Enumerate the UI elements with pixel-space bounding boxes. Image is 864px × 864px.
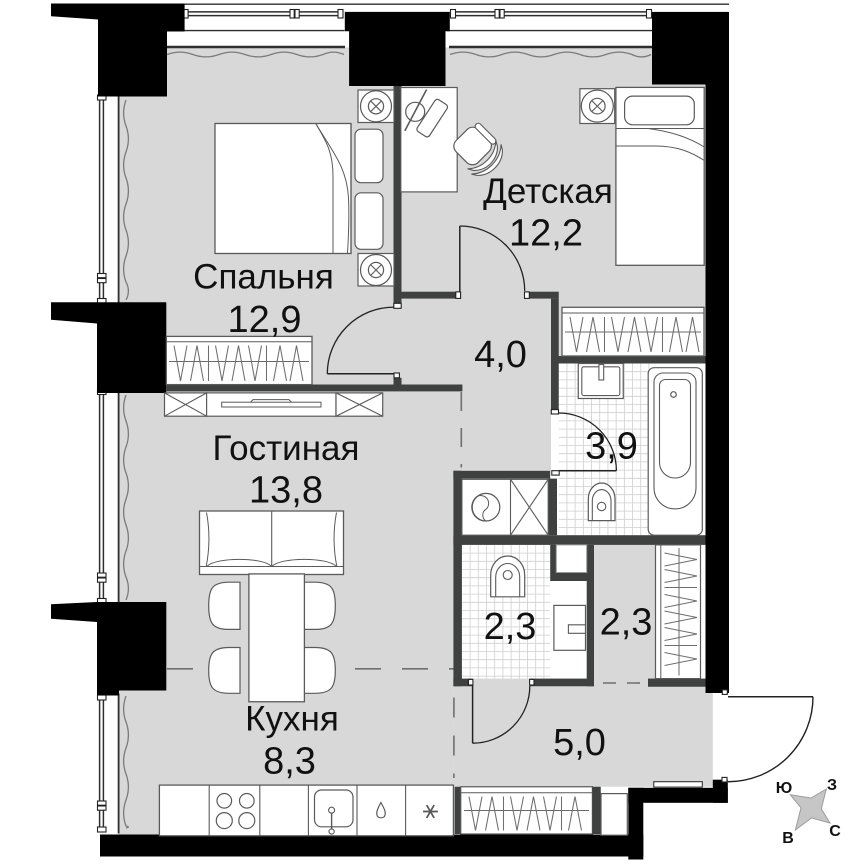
svg-text:Гостиная: Гостиная: [213, 429, 360, 468]
svg-text:13,8: 13,8: [249, 470, 323, 512]
svg-text:12,9: 12,9: [228, 299, 302, 341]
svg-text:Ю: Ю: [776, 780, 793, 797]
svg-text:3,9: 3,9: [585, 426, 638, 468]
svg-text:З: З: [827, 777, 837, 794]
svg-text:12,2: 12,2: [509, 213, 583, 255]
svg-text:В: В: [782, 830, 794, 847]
svg-text:2,3: 2,3: [484, 606, 537, 648]
svg-text:8,3: 8,3: [263, 741, 316, 783]
svg-text:2,3: 2,3: [600, 602, 653, 644]
svg-text:Спальня: Спальня: [193, 258, 334, 297]
svg-text:4,0: 4,0: [474, 334, 527, 376]
svg-text:С: С: [829, 823, 841, 840]
svg-text:5,0: 5,0: [553, 722, 606, 764]
svg-text:Кухня: Кухня: [245, 700, 339, 739]
svg-text:Детская: Детская: [483, 172, 613, 211]
